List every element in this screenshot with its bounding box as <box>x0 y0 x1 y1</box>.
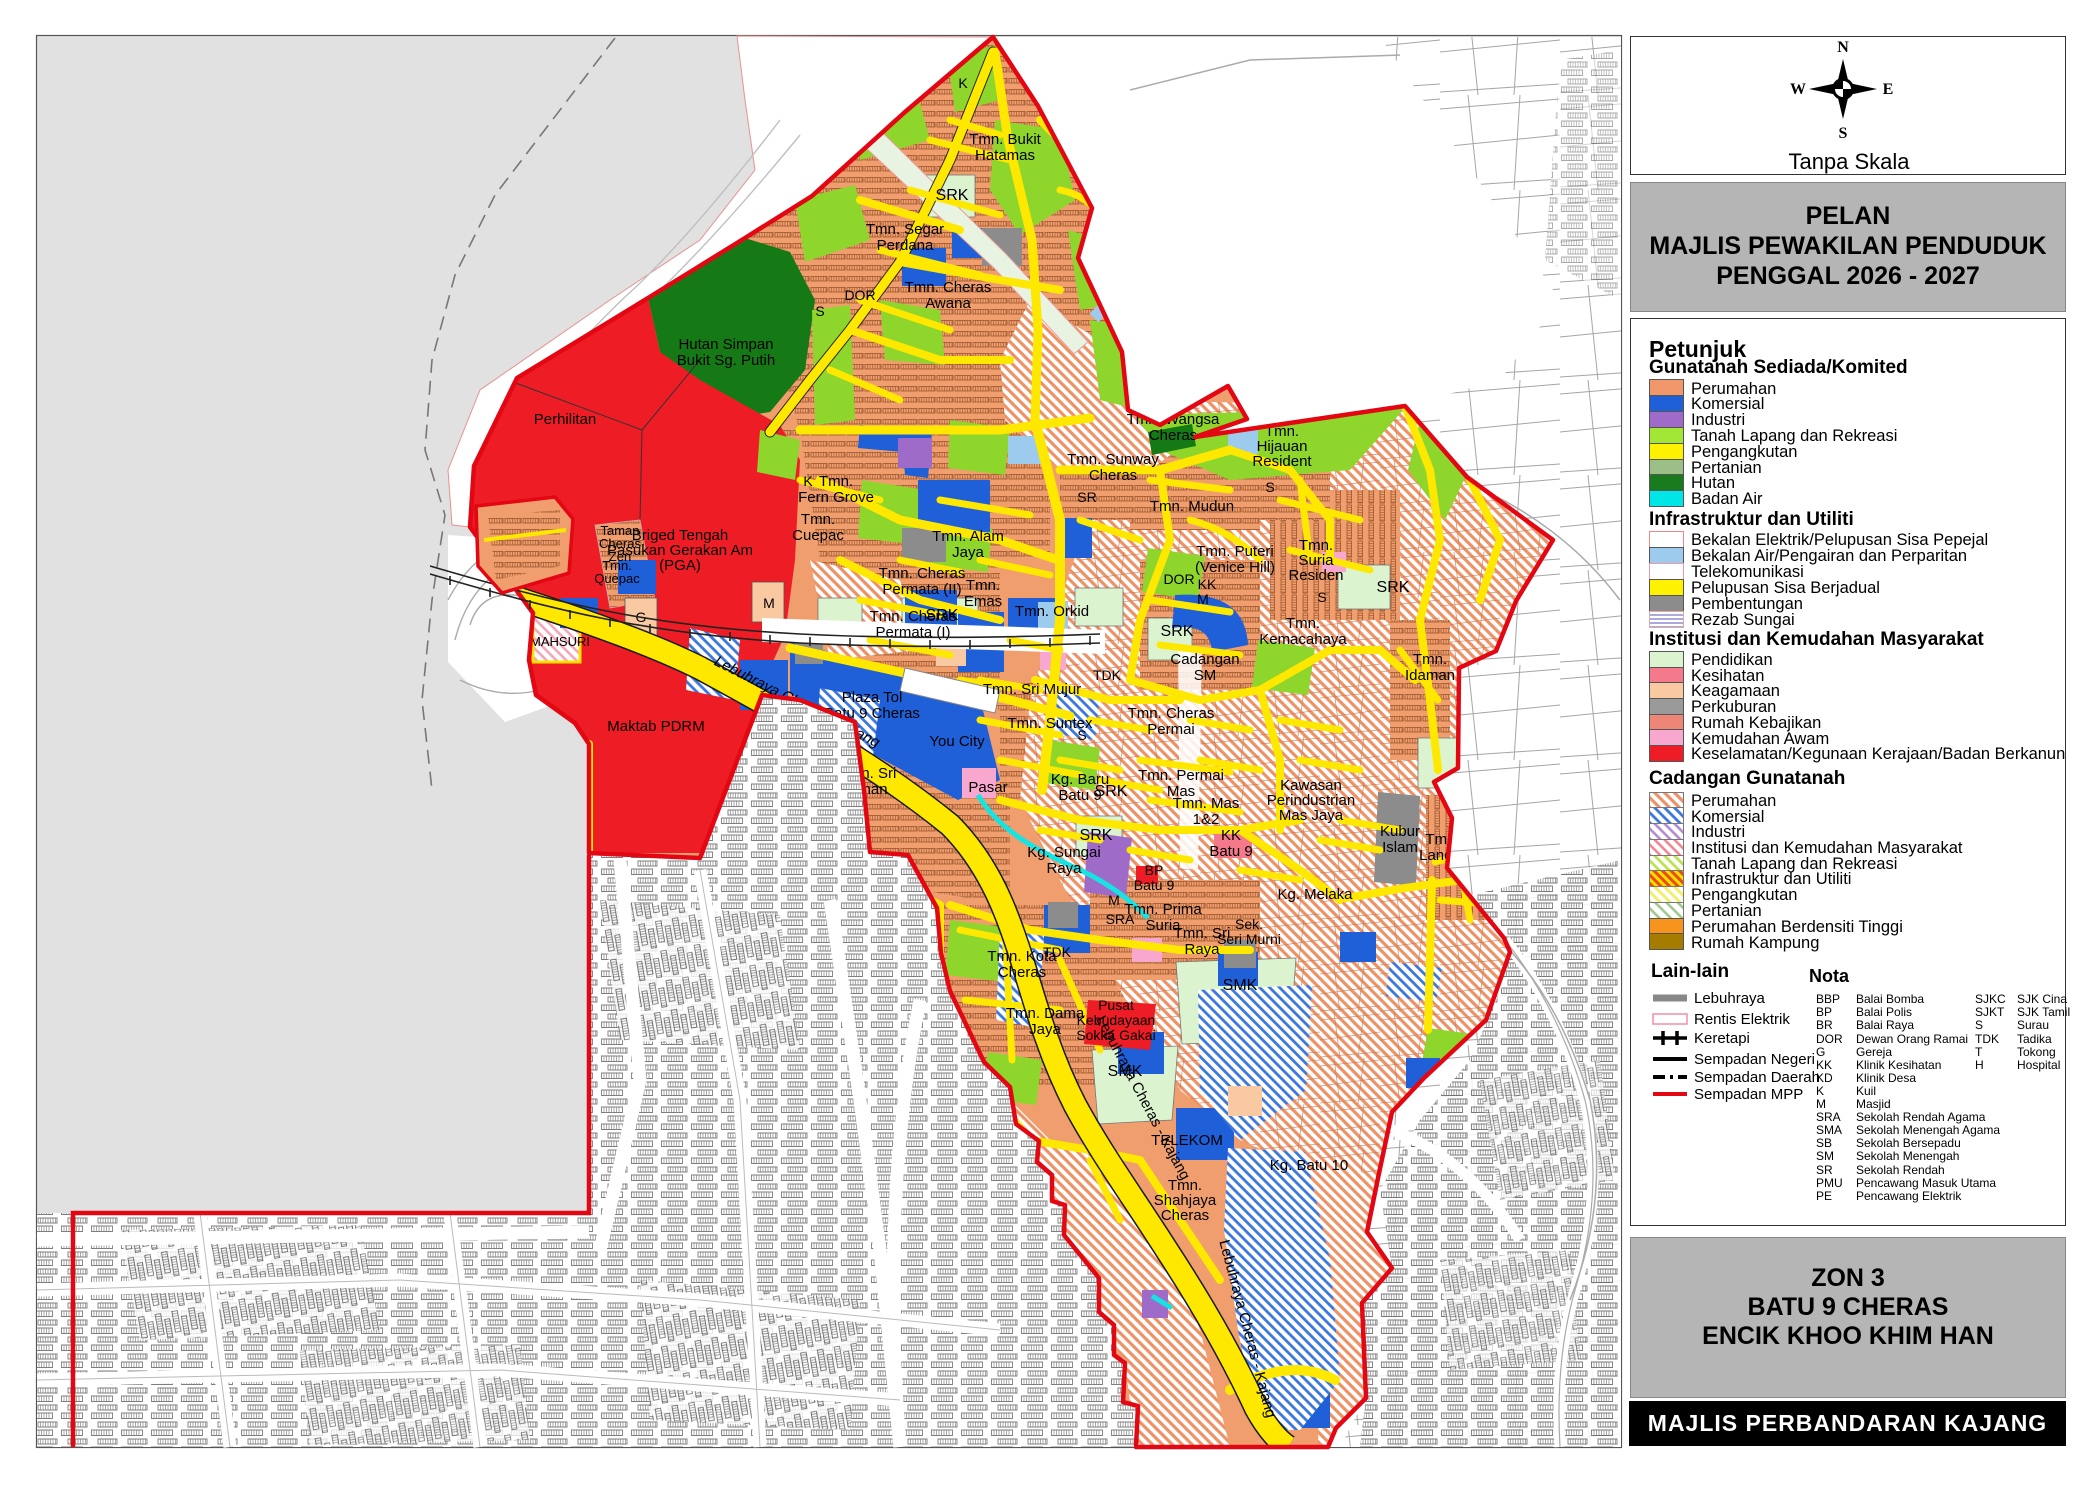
svg-text:You City: You City <box>929 733 985 750</box>
svg-text:TDK: TDK <box>1093 667 1122 683</box>
svg-text:Maktab PDRM: Maktab PDRM <box>607 718 705 735</box>
svg-text:W: W <box>1790 81 1806 98</box>
svg-text:M: M <box>763 595 775 611</box>
svg-text:SRK: SRK <box>926 607 959 624</box>
svg-text:Pasar: Pasar <box>968 779 1007 796</box>
svg-text:SRK: SRK <box>1161 623 1194 640</box>
svg-text:DOR: DOR <box>844 287 875 303</box>
svg-text:Tmn. Sri Mujur: Tmn. Sri Mujur <box>983 681 1081 698</box>
svg-text:Tmn. Suntex: Tmn. Suntex <box>1007 715 1093 732</box>
svg-text:MAHSURI: MAHSURI <box>530 634 590 649</box>
svg-text:Tmn. Mudun: Tmn. Mudun <box>1150 498 1234 515</box>
svg-text:S: S <box>815 303 824 319</box>
svg-text:Kg. Batu 10: Kg. Batu 10 <box>1270 1157 1348 1174</box>
svg-text:Tmn. Orkid: Tmn. Orkid <box>1015 603 1089 620</box>
svg-text:K: K <box>803 473 813 489</box>
svg-text:S: S <box>1265 479 1274 495</box>
svg-text:S: S <box>1317 589 1326 605</box>
svg-text:Tmn. BukitHatamas: Tmn. BukitHatamas <box>969 131 1042 164</box>
svg-text:Perhilitan: Perhilitan <box>534 411 597 428</box>
svg-text:E: E <box>1883 81 1894 98</box>
svg-text:M: M <box>1108 892 1120 908</box>
svg-text:SRK: SRK <box>1080 827 1113 844</box>
svg-text:Tmn.Emas: Tmn.Emas <box>964 577 1002 610</box>
svg-text:Tmn. CherasPermata (II): Tmn. CherasPermata (II) <box>879 565 966 598</box>
svg-text:Tmn. Puteri(Venice Hill): Tmn. Puteri(Venice Hill) <box>1195 543 1275 576</box>
svg-text:SR: SR <box>1077 489 1096 505</box>
svg-text:DOR: DOR <box>1163 571 1194 587</box>
svg-text:TDK: TDK <box>1043 944 1072 960</box>
svg-text:Tmn. SegarPerdana: Tmn. SegarPerdana <box>866 221 944 254</box>
svg-text:M: M <box>1197 591 1209 607</box>
svg-text:SRK: SRK <box>936 187 969 204</box>
svg-text:N: N <box>1837 39 1849 56</box>
svg-text:KK: KK <box>1198 576 1217 592</box>
svg-text:S: S <box>1839 125 1848 142</box>
svg-text:Hutan SimpanBukit Sg. Putih: Hutan SimpanBukit Sg. Putih <box>677 336 775 369</box>
svg-text:Kg. Melaka: Kg. Melaka <box>1277 886 1353 903</box>
svg-text:SMK: SMK <box>1223 977 1258 994</box>
svg-text:KuburIslam: KuburIslam <box>1380 823 1420 856</box>
svg-text:SRK: SRK <box>1095 783 1128 800</box>
svg-text:K: K <box>958 75 968 91</box>
svg-text:SRK: SRK <box>1377 579 1410 596</box>
